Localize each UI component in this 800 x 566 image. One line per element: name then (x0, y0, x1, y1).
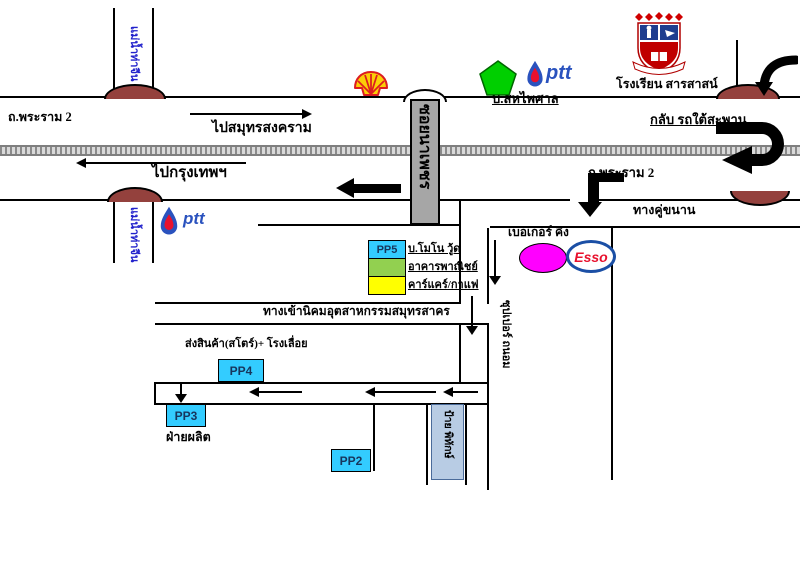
pp3-label: PP3 (175, 409, 198, 423)
arrow-east-shaft (190, 113, 304, 115)
ptt-wordmark: ptt (546, 62, 572, 85)
parallel-road-label: ทางคู่ขนาน (633, 203, 695, 217)
highway-bottom-edge-left (0, 199, 570, 201)
legend-mono-wood-label: บ.โมโน วู้ด (408, 243, 460, 256)
soi-road-edge (487, 228, 489, 304)
arrow-left-head (365, 387, 375, 397)
school-crest-icon (629, 12, 689, 76)
arrow-down-shaft (471, 296, 473, 328)
to-bangkok-label: ไปกรุงเทพฯ (152, 165, 227, 182)
river-bank-line (113, 201, 115, 263)
arrow-east-head (302, 109, 312, 119)
arrow-west-shaft (86, 162, 246, 164)
exit-arrow-head (578, 202, 602, 217)
ptt-wordmark: ptt (183, 209, 205, 229)
arrow-down-shaft (494, 240, 496, 278)
arrow-left-shaft (258, 391, 302, 393)
pp2-label: PP2 (340, 454, 363, 468)
arrow-left-head (249, 387, 259, 397)
sign-board-label: ป้าย พิทักษ์ (441, 410, 453, 458)
arrow-down-head-pp3 (175, 394, 187, 403)
store-sawmill-label: ส่งสินค้า(สโตร์)+ โรงเลื่อย (185, 338, 308, 351)
burger-king-label: เบอเกอร์ คิง (508, 226, 569, 240)
factory-road-top (155, 382, 489, 384)
river-label: แม่น้ำท่าจีน (127, 207, 140, 262)
arrow-left-head (443, 387, 453, 397)
legend-carcare-label: คาร์แคร์/กาแฟ (408, 279, 479, 292)
uturn-arrow (706, 114, 800, 174)
arrow-west-head (76, 158, 86, 168)
to-samut-songkhram-label: ไปสมุทรสงคราม (212, 121, 312, 137)
arrow-down-head (466, 326, 478, 335)
production-dept-label: ฝ่ายผลิต (166, 430, 211, 444)
estate-road-bottom (155, 323, 489, 325)
turn-left-arrow-head (336, 178, 354, 198)
shell-logo-icon (352, 71, 390, 97)
legend-green-box (368, 258, 406, 277)
rama2-left-label: ถ.พระราม 2 (8, 110, 72, 124)
river-label: แม่น้ำท่าจีน (127, 26, 140, 81)
underpass-dip (730, 191, 790, 206)
estate-entrance-label: ทางเข้านิคมอุตสาหกรรมสมุทรสาคร (263, 305, 450, 319)
turn-left-arrow-shaft (353, 184, 401, 193)
sign-road-edge (426, 404, 428, 485)
esso-wordmark: Esso (574, 249, 607, 265)
legend-shophouse-label: อาคารพาณิชย์ (408, 261, 478, 274)
sign-road-edge (465, 404, 467, 485)
pp2-building: PP2 (331, 449, 371, 472)
hook-arrow (752, 50, 798, 96)
arrow-left-shaft (452, 391, 478, 393)
highway-median (0, 145, 800, 156)
school-label: โรงเรียน สารสาสน์ (616, 77, 718, 91)
soi-road-edge (459, 325, 461, 383)
saha-phaisan-label: บ.สหไพศาล (492, 92, 559, 107)
pp4-label: PP4 (230, 364, 253, 378)
ptt-drop-icon (526, 60, 544, 88)
super-thanom-label: ซุปเปอร์ ถนอม (499, 300, 512, 369)
river-bank-line (152, 8, 154, 97)
soi-sign-label: ซอยนาเพชร (415, 104, 433, 189)
exit-arrow-shaft-v (588, 173, 599, 204)
bridge-arch-over-river (107, 187, 163, 202)
arrow-left-shaft (374, 391, 436, 393)
ptt-drop-icon (159, 206, 179, 236)
soi-road-edge-long (487, 325, 489, 490)
factory-road-endcap (154, 382, 156, 405)
yard-line (373, 405, 375, 471)
burger-king-ellipse (519, 243, 567, 273)
river-bank-line (152, 201, 154, 263)
pp5-label: PP5 (377, 244, 398, 256)
pp3-building: PP3 (166, 404, 206, 427)
hand-drawn-directions-map: ซอยนาเพชร แม่น้ำท่าจีน แม่น้ำท่าจีน ถ.พร… (0, 0, 800, 566)
esso-logo: Esso (566, 240, 616, 273)
legend-yellow-box (368, 276, 406, 295)
legend-pp5-box: PP5 (368, 240, 406, 259)
arrow-down-head (489, 276, 501, 285)
river-bank-line (113, 8, 115, 97)
pp4-building: PP4 (218, 359, 264, 382)
